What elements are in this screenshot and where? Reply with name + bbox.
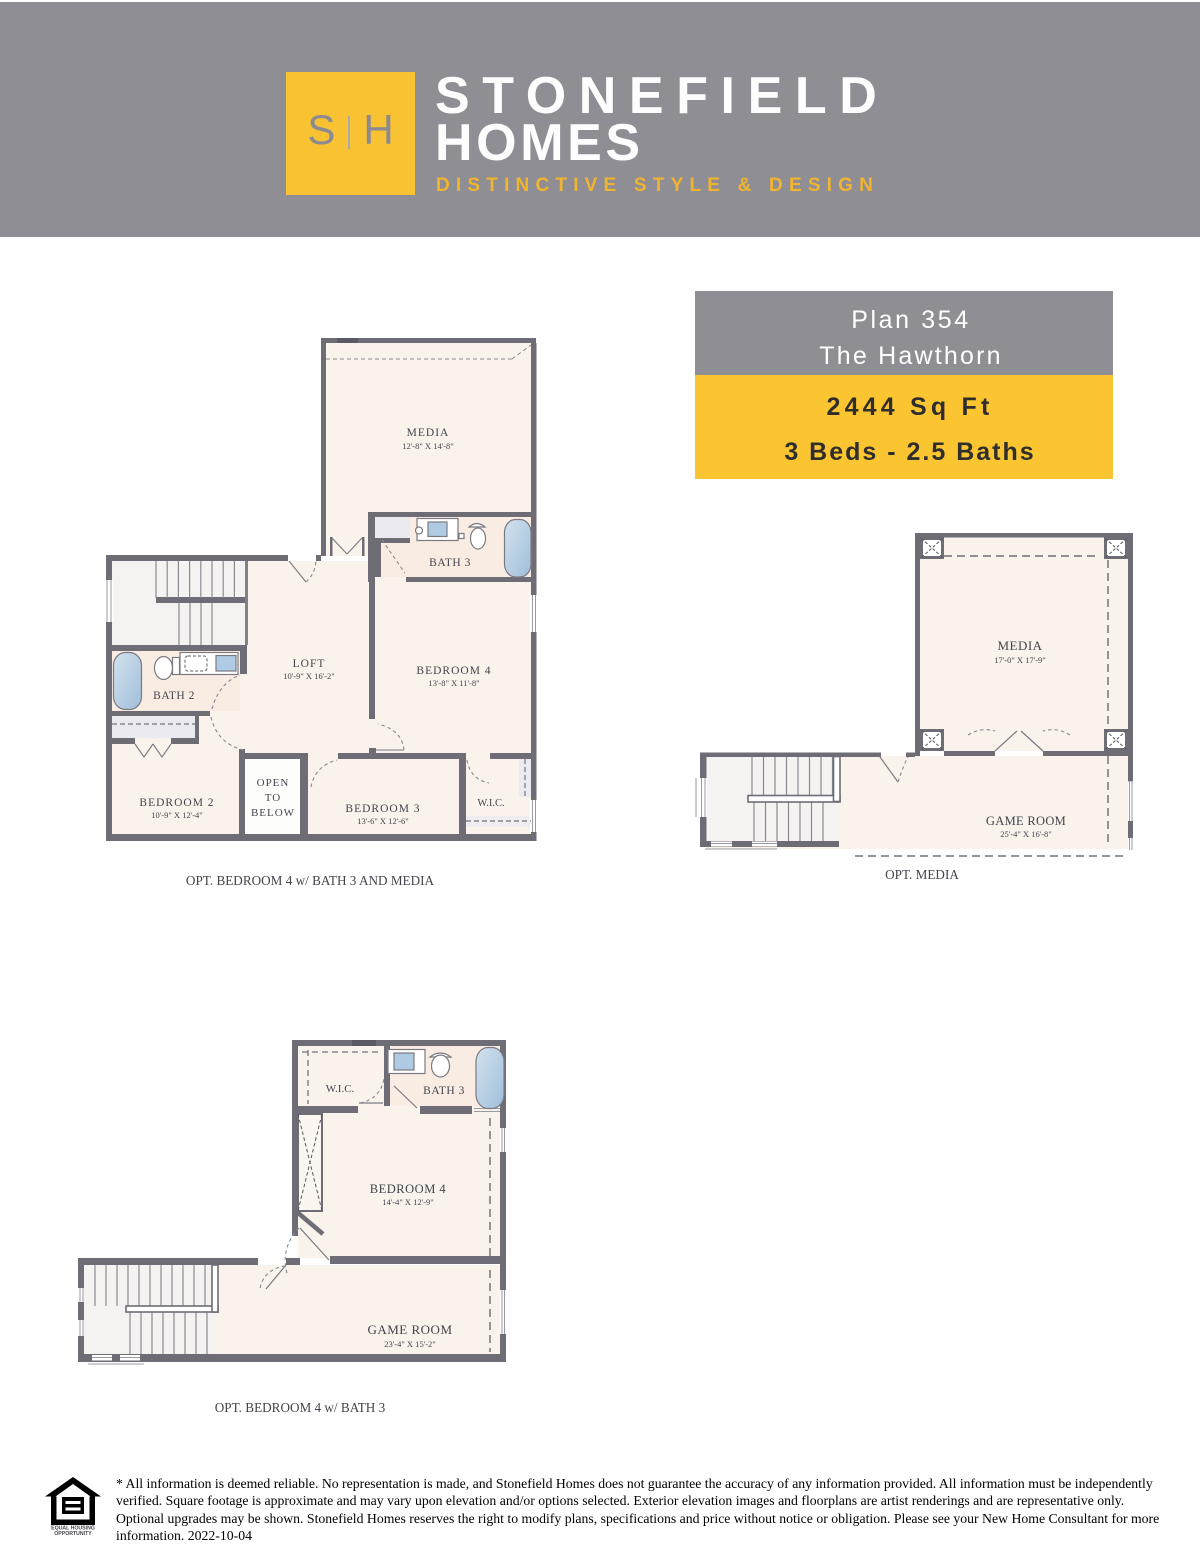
svg-text:GAME ROOM: GAME ROOM [367,1322,452,1337]
svg-text:OPT. BEDROOM 4 w/ BATH 3: OPT. BEDROOM 4 w/ BATH 3 [215,1400,386,1415]
svg-text:BELOW: BELOW [251,807,295,819]
svg-text:W.I.C.: W.I.C. [477,798,504,809]
svg-text:OPEN: OPEN [257,777,290,789]
svg-text:12'-8" X 14'-8": 12'-8" X 14'-8" [402,441,454,451]
svg-text:MEDIA: MEDIA [997,638,1042,653]
svg-text:17'-0" X 17'-9": 17'-0" X 17'-9" [994,655,1046,665]
svg-text:MEDIA: MEDIA [407,427,450,439]
svg-text:BATH 2: BATH 2 [153,690,195,702]
svg-text:13'-8" X 11'-8": 13'-8" X 11'-8" [428,678,479,688]
svg-text:BEDROOM 4: BEDROOM 4 [370,1182,447,1196]
svg-text:10'-9" X 16'-2": 10'-9" X 16'-2" [283,671,335,681]
svg-text:BEDROOM 4: BEDROOM 4 [416,665,491,677]
svg-text:23'-4" X 15'-2": 23'-4" X 15'-2" [384,1339,436,1349]
svg-text:BEDROOM 3: BEDROOM 3 [345,803,420,815]
svg-text:LOFT: LOFT [293,658,326,670]
svg-text:OPT. MEDIA: OPT. MEDIA [885,867,959,882]
svg-text:TO: TO [265,792,281,804]
svg-text:BEDROOM 2: BEDROOM 2 [139,797,214,809]
svg-text:10'-9" X 12'-4": 10'-9" X 12'-4" [151,810,203,820]
svg-text:25'-4" X 16'-8": 25'-4" X 16'-8" [1000,829,1052,839]
svg-text:BATH 3: BATH 3 [423,1085,465,1097]
svg-text:W.I.C.: W.I.C. [326,1083,355,1095]
svg-text:GAME ROOM: GAME ROOM [986,814,1066,828]
svg-text:OPT. BEDROOM 4 w/ BATH 3 AND M: OPT. BEDROOM 4 w/ BATH 3 AND MEDIA [186,873,435,888]
svg-text:BATH 3: BATH 3 [429,557,471,569]
svg-text:13'-6" X 12'-6": 13'-6" X 12'-6" [357,816,409,826]
svg-text:14'-4" X 12'-9": 14'-4" X 12'-9" [382,1197,434,1207]
svg-text:OPPORTUNITY: OPPORTUNITY [54,1531,92,1537]
